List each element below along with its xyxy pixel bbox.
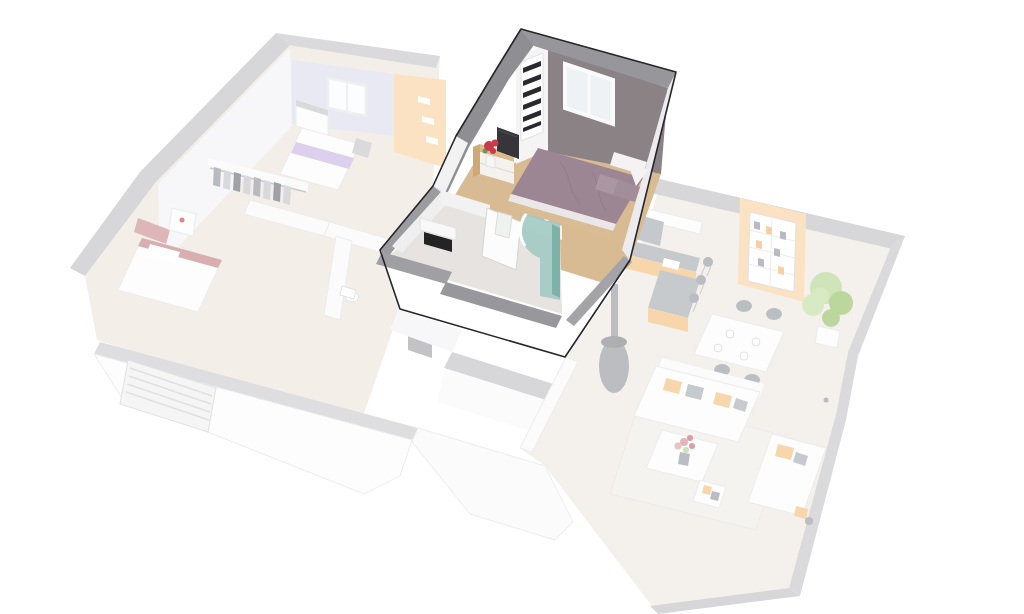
corner-bookshelf	[521, 53, 543, 141]
bookshelf	[748, 212, 796, 292]
floorplan-3d-render	[0, 0, 1024, 614]
peach-room-wall	[394, 74, 446, 168]
vase	[486, 155, 495, 168]
shower-glass-dark-panel	[552, 224, 560, 298]
dresser-side	[473, 144, 480, 177]
nightstand-book	[180, 218, 185, 223]
vase	[678, 452, 690, 466]
foot-panel	[495, 212, 512, 238]
